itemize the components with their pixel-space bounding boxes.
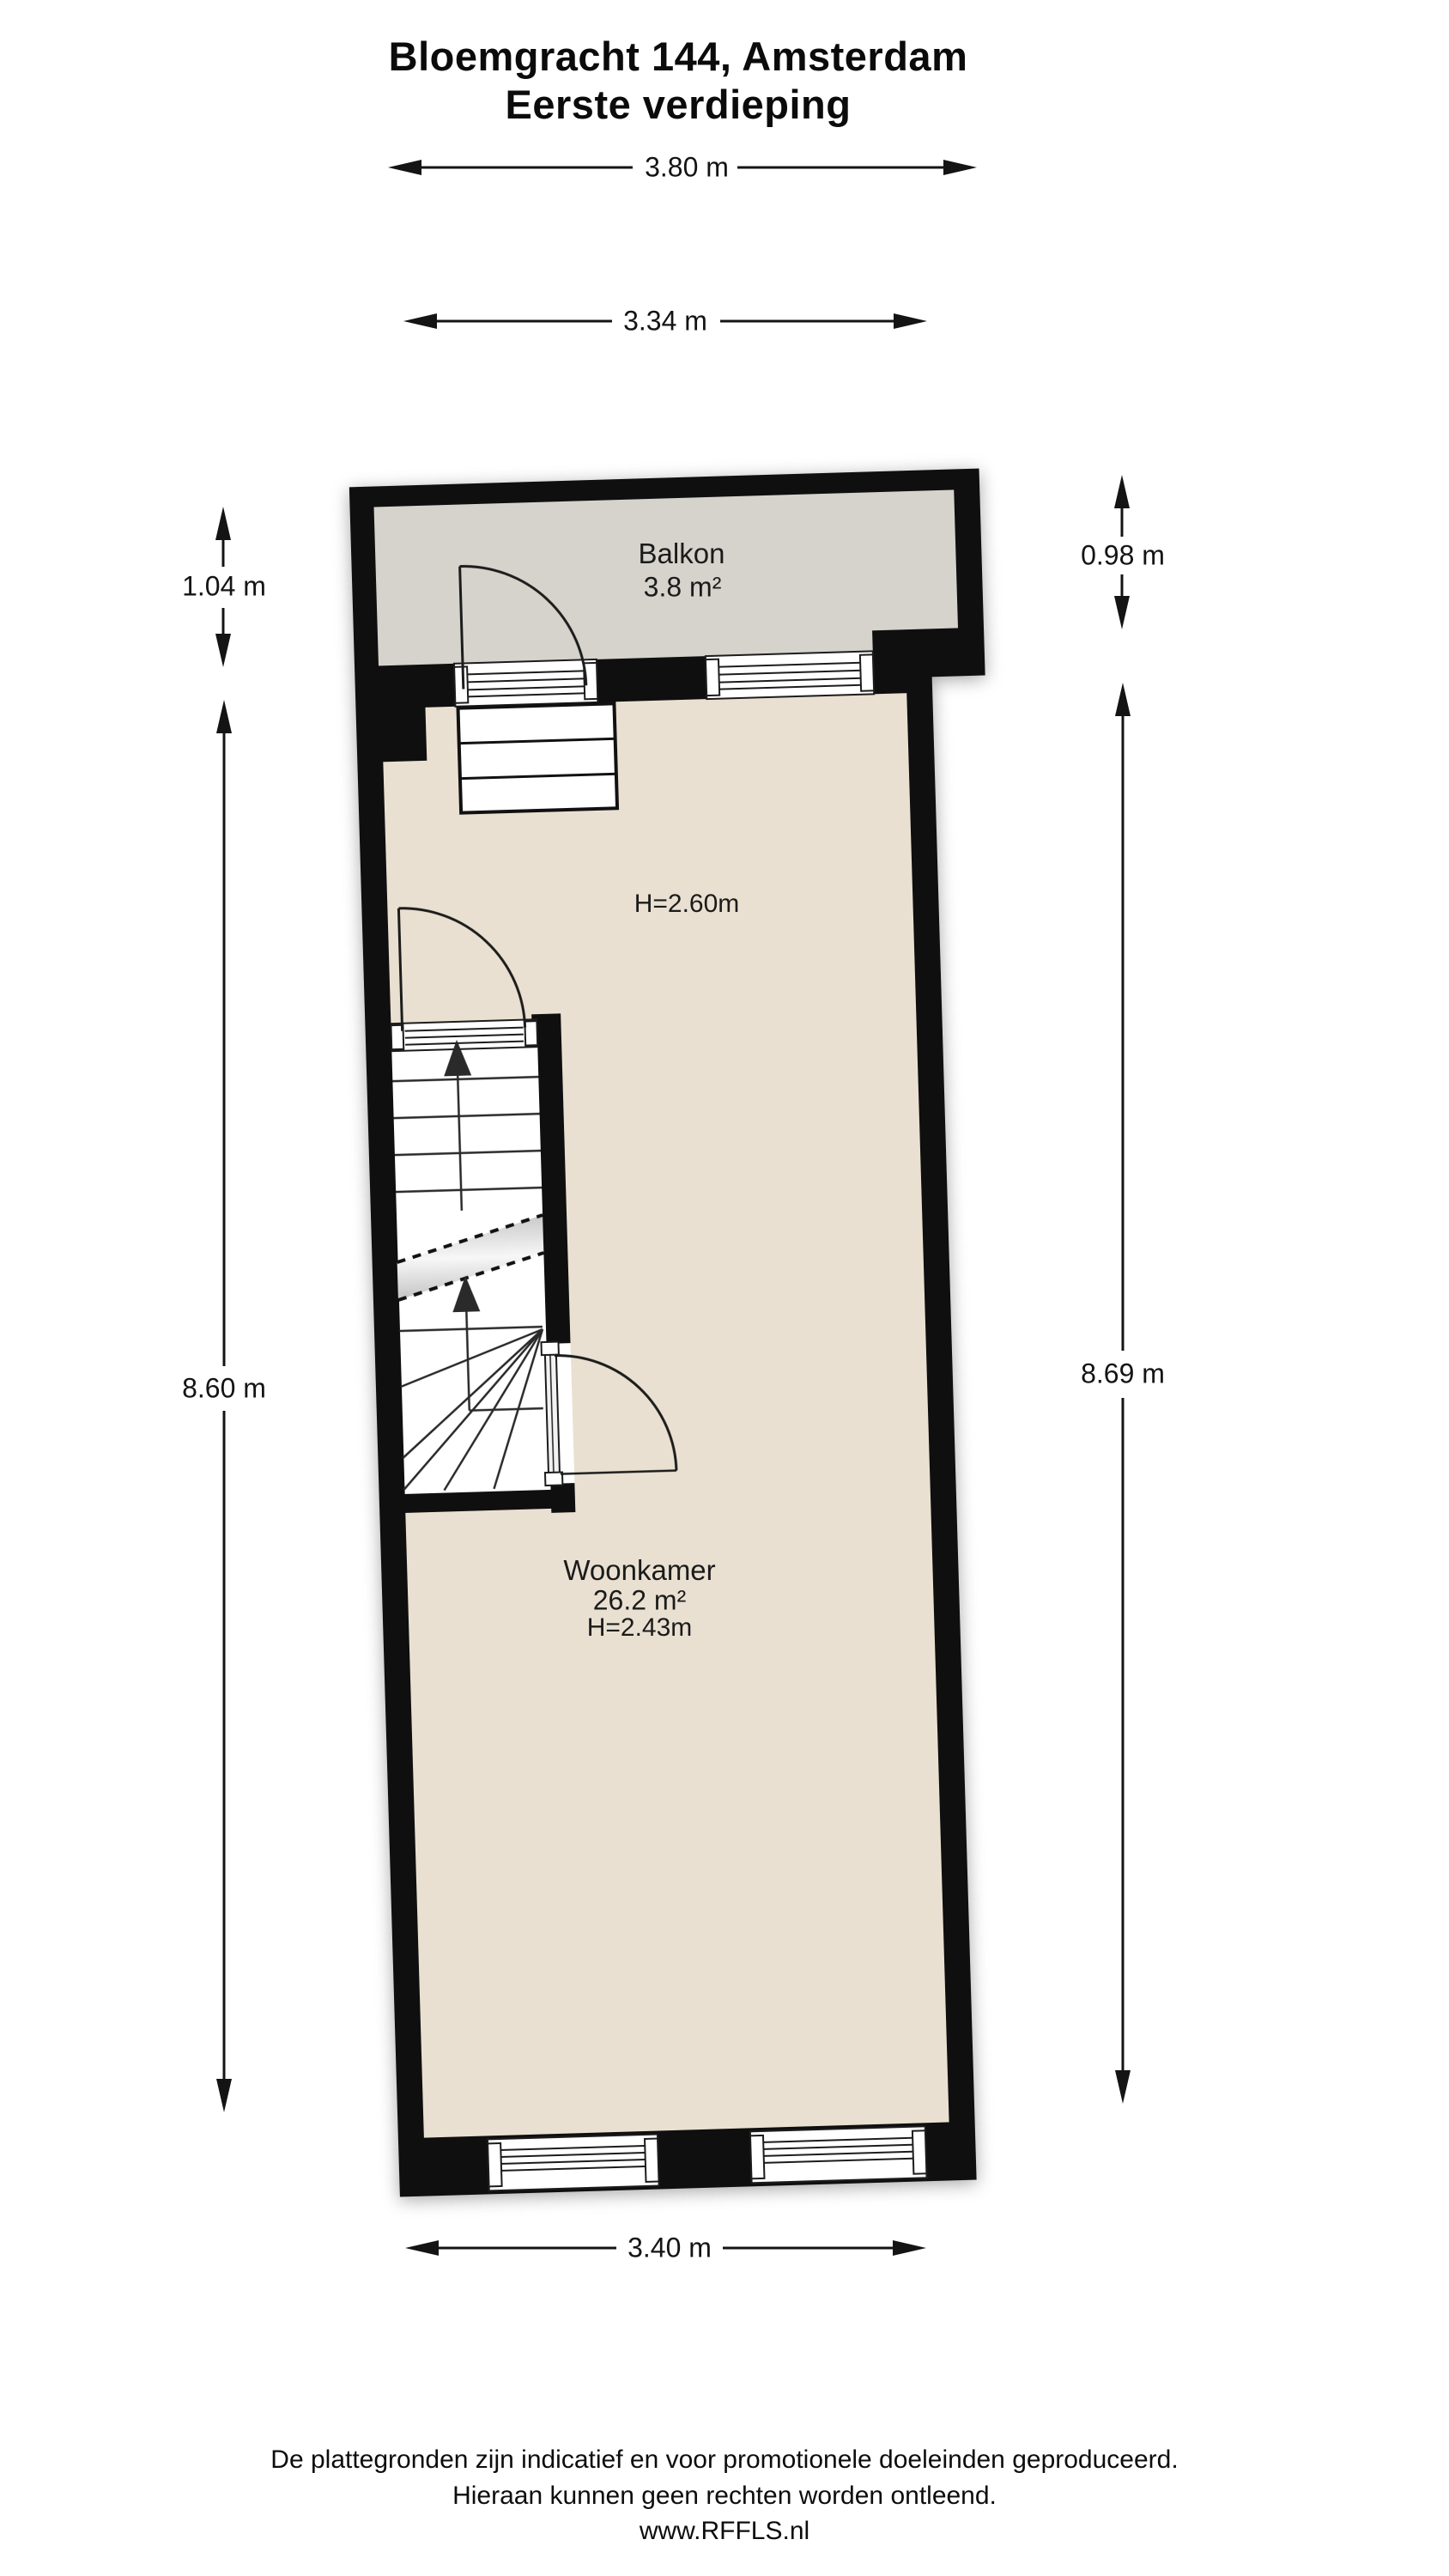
window-jamb bbox=[706, 659, 719, 696]
balcony-steps bbox=[458, 703, 618, 812]
arrowhead-right bbox=[943, 160, 977, 175]
window-jamb bbox=[488, 2143, 501, 2186]
woonkamer-ceiling: H=2.43m bbox=[587, 1613, 693, 1643]
window-jamb bbox=[454, 666, 468, 702]
dim-balcony-left-label: 1.04 m bbox=[177, 571, 271, 603]
dim-top-outer-label: 3.80 m bbox=[640, 152, 734, 184]
wall-left-pier bbox=[355, 665, 427, 762]
floorplan-page: Bloemgracht 144, Amsterdam Eerste verdie… bbox=[0, 0, 1449, 2576]
window-jamb bbox=[860, 654, 874, 690]
dim-left-height-arrow bbox=[209, 698, 239, 2114]
woonkamer-label: Woonkamer bbox=[563, 1554, 715, 1587]
floor-plan bbox=[347, 454, 1033, 2198]
dim-left-height-label: 8.60 m bbox=[177, 1373, 271, 1405]
balkon-area: 3.8 m² bbox=[644, 572, 722, 604]
window-jamb bbox=[645, 2139, 658, 2182]
dim-bottom-label: 3.40 m bbox=[622, 2233, 717, 2264]
wall-balcony-band-pier bbox=[597, 656, 706, 702]
footer-disclaimer-1: De plattegronden zijn indicatief en voor… bbox=[81, 2445, 1368, 2475]
footer-disclaimer-2: Hieraan kunnen geen rechten worden ontle… bbox=[81, 2482, 1368, 2511]
footer-website: www.RFFLS.nl bbox=[81, 2517, 1368, 2546]
woonkamer-area: 26.2 m² bbox=[593, 1585, 686, 1617]
wall-balcony-band-left bbox=[424, 664, 455, 708]
ceiling-height-front: H=2.60m bbox=[634, 890, 740, 919]
dim-right-height-arrow bbox=[1107, 681, 1138, 2105]
arrowhead-left bbox=[388, 160, 421, 175]
window-jamb bbox=[750, 2136, 764, 2178]
page-subtitle: Eerste verdieping bbox=[206, 81, 1150, 128]
dim-balcony-right-label: 0.98 m bbox=[1076, 540, 1170, 572]
dim-right-height-label: 8.69 m bbox=[1076, 1358, 1170, 1390]
window-jamb bbox=[912, 2130, 926, 2173]
stairwell-top-door-leaf bbox=[391, 1019, 537, 1051]
wall-balcony-band-right bbox=[873, 650, 906, 694]
page-title: Bloemgracht 144, Amsterdam bbox=[206, 33, 1150, 80]
balkon-label: Balkon bbox=[639, 538, 725, 570]
dim-top-inner-label: 3.34 m bbox=[618, 306, 712, 337]
window-balcony-left bbox=[454, 659, 597, 707]
